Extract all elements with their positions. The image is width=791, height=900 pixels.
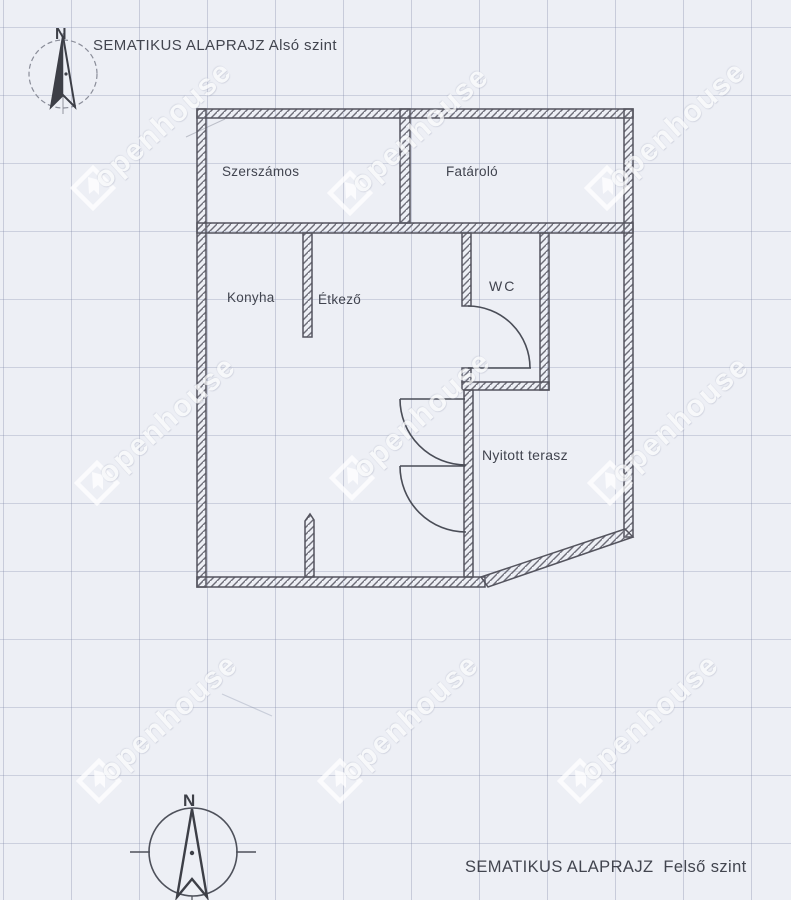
room-label-konyha: Konyha [227, 290, 275, 305]
wall-divider-szerszamos-fatarolo [400, 109, 410, 223]
compass-center-dot [190, 851, 194, 855]
room-label-szerszamos: Szerszámos [222, 164, 299, 179]
wall-wc-right [540, 233, 549, 390]
room-label-nyitott-terasz: Nyitott terasz [482, 447, 568, 463]
wall-outer-top [197, 109, 633, 118]
scanned-floor-plan-page: Szerszámos Fatároló Konyha Étkező WC Nyi… [0, 0, 791, 900]
title-lower-level: SEMATIKUS ALAPRAJZ Alsó szint [93, 37, 337, 54]
wall-wc-left-upper [462, 233, 471, 306]
north-compass-bottom: N [130, 791, 256, 900]
wall-stub-konyha-etkezo [303, 233, 312, 337]
wall-wc-bottom [462, 382, 549, 390]
wall-outer-bottom [197, 577, 485, 587]
room-label-fatarolo: Fatároló [446, 164, 498, 179]
north-label: N [55, 26, 67, 43]
room-label-wc: WC [489, 278, 516, 294]
wall-outer-diagonal [481, 529, 633, 587]
room-label-etkezo: Étkező [318, 292, 361, 307]
north-label: N [183, 791, 195, 810]
terrace-door-upper-arc [400, 399, 466, 465]
compass-center-dot [64, 72, 67, 75]
title-upper-level: SEMATIKUS ALAPRAJZ Felső szint [465, 858, 747, 877]
wall-outer-right [624, 109, 633, 537]
north-compass-top: N [29, 26, 97, 114]
terrace-door-lower-arc [400, 466, 466, 532]
wall-wc-left-lower [462, 368, 471, 382]
room-labels: Szerszámos Fatároló Konyha Étkező WC Nyi… [222, 164, 568, 463]
wall-outer-left [197, 109, 206, 587]
wc-door-arc [468, 306, 531, 368]
wall-terrace-divider [464, 390, 473, 577]
pencil-mark [222, 694, 272, 716]
wall-mid-horizontal [197, 223, 633, 233]
floor-plan-drawing: Szerszámos Fatároló Konyha Étkező WC Nyi… [0, 0, 791, 900]
walls-group [197, 109, 633, 587]
wall-stub-bottom [305, 514, 314, 577]
